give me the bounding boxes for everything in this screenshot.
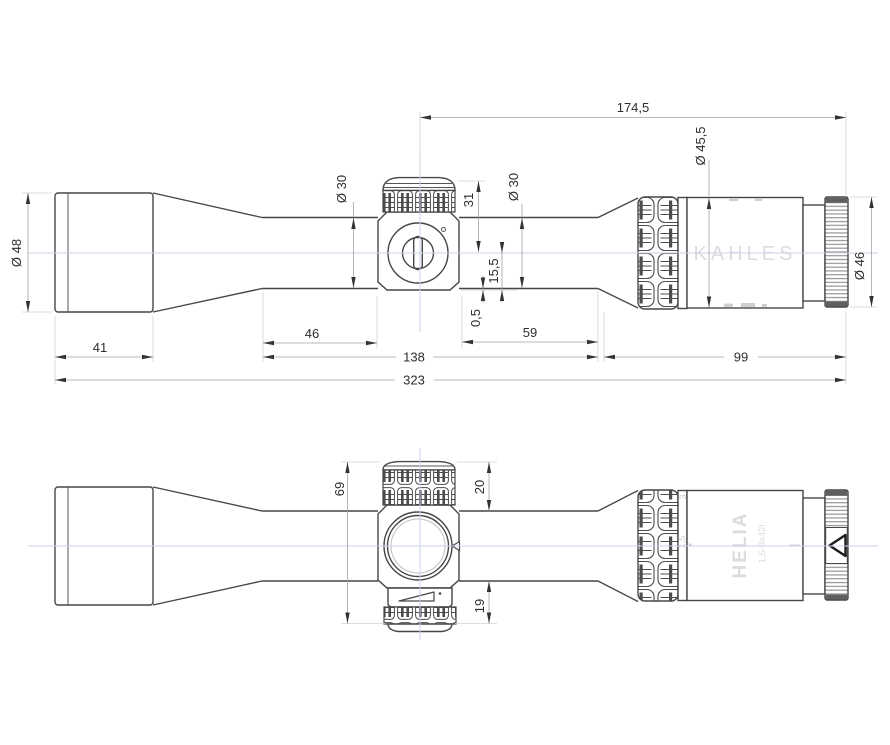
dim-tube-front-length: 46 [263,292,377,362]
dim-label-tube-diameter-front: Ø 30 [334,175,349,203]
spec-engraving: 1,5-8x42i [757,524,768,563]
diopter-ring-bottom-cap [826,302,847,307]
dim-label-saddle-protrusion: 0,5 [468,309,483,327]
dim-label-ring-diameter: Ø 46 [852,252,867,280]
dim-turret-span: 69 [332,462,385,624]
scope-body-bottom-view: 3 1,5 HELIA 1,5-8x42i [55,462,848,632]
diopter-ring [825,197,848,307]
model-engraving: HELIA [730,512,751,579]
dim-front-to-ocular: 138 [263,350,598,365]
mag-scale-high: 3 [678,494,688,499]
dim-label-bottom-turret-height: 19 [472,599,487,613]
dim-label-overall-length: 323 [403,373,425,388]
dim-label-objective-diameter: Ø 48 [9,239,24,267]
dim-overall-length: 323 [55,311,846,388]
dim-label-tube-front-length: 46 [305,326,319,341]
top-view: KAHLES Ø 48 41 [9,100,878,388]
dim-label-ocular-assembly: 99 [734,350,748,365]
dim-saddle-protrusion: 0,5 [468,276,483,327]
dim-label-turret-center-to-rear: 174,5 [617,100,650,115]
dim-label-turret-height: 31 [461,193,476,207]
dim-bottom-turret-height: 19 [455,581,497,624]
dim-label-turret-span: 69 [332,482,347,496]
dim-label-ocular-diameter: Ø 45,5 [693,126,708,165]
dim-tube-diameter-front: Ø 30 [334,175,354,288]
dim-ocular-assembly: 99 [604,312,846,365]
bottom-view: 3 1,5 HELIA 1,5-8x42i 69 20 [28,448,878,640]
dim-label-top-turret-height: 20 [472,480,487,494]
dim-turret-height: 31 [458,181,485,252]
dim-ring-diameter: Ø 46 [850,197,877,307]
scope-body-top-view: KAHLES [55,178,848,312]
dim-label-axis-to-saddle-bottom: 15,5 [486,258,501,283]
elevation-cap-knurling [383,191,455,213]
illumination-dot-icon [439,592,442,595]
diopter-ring-bottom-cap [826,595,847,600]
dim-tube-diameter-rear: Ø 30 [506,173,522,288]
dim-label-tube-diameter-rear: Ø 30 [506,173,521,201]
drawing-canvas: KAHLES Ø 48 41 [0,0,890,745]
diopter-ring-top-cap [826,198,847,203]
dim-bell-length: 41 [55,316,153,362]
elevation-cap-dome [383,178,455,191]
dim-axis-to-saddle-bottom: 15,5 [461,242,517,302]
top-turret-knurling [383,470,455,505]
dim-label-bell-length: 41 [93,340,107,355]
dim-top-turret-height: 20 [457,462,497,511]
diopter-ring-top-cap [826,491,847,496]
dim-label-front-to-ocular: 138 [403,350,425,365]
dim-label-saddle-to-ocular: 59 [523,325,537,340]
technical-drawing: KAHLES Ø 48 41 [0,0,890,745]
